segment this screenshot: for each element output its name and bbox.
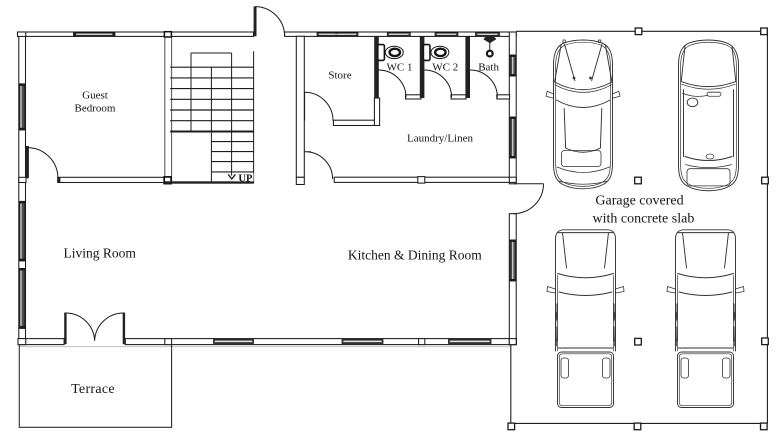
svg-text:Guest: Guest	[82, 90, 108, 102]
svg-text:Store: Store	[328, 70, 351, 82]
svg-text:Terrace: Terrace	[71, 382, 115, 397]
svg-text:WC 2: WC 2	[432, 61, 458, 73]
svg-text:Bath: Bath	[478, 61, 499, 73]
svg-text:UP: UP	[238, 174, 253, 185]
svg-text:Laundry/Linen: Laundry/Linen	[407, 133, 473, 145]
svg-text:Bedroom: Bedroom	[75, 103, 116, 115]
svg-text:with concrete slab: with concrete slab	[592, 212, 694, 227]
svg-text:WC 1: WC 1	[387, 61, 413, 73]
svg-text:Kitchen & Dining Room: Kitchen & Dining Room	[348, 247, 482, 262]
svg-text:Living Room: Living Room	[64, 246, 137, 261]
svg-text:Garage covered: Garage covered	[595, 194, 683, 209]
